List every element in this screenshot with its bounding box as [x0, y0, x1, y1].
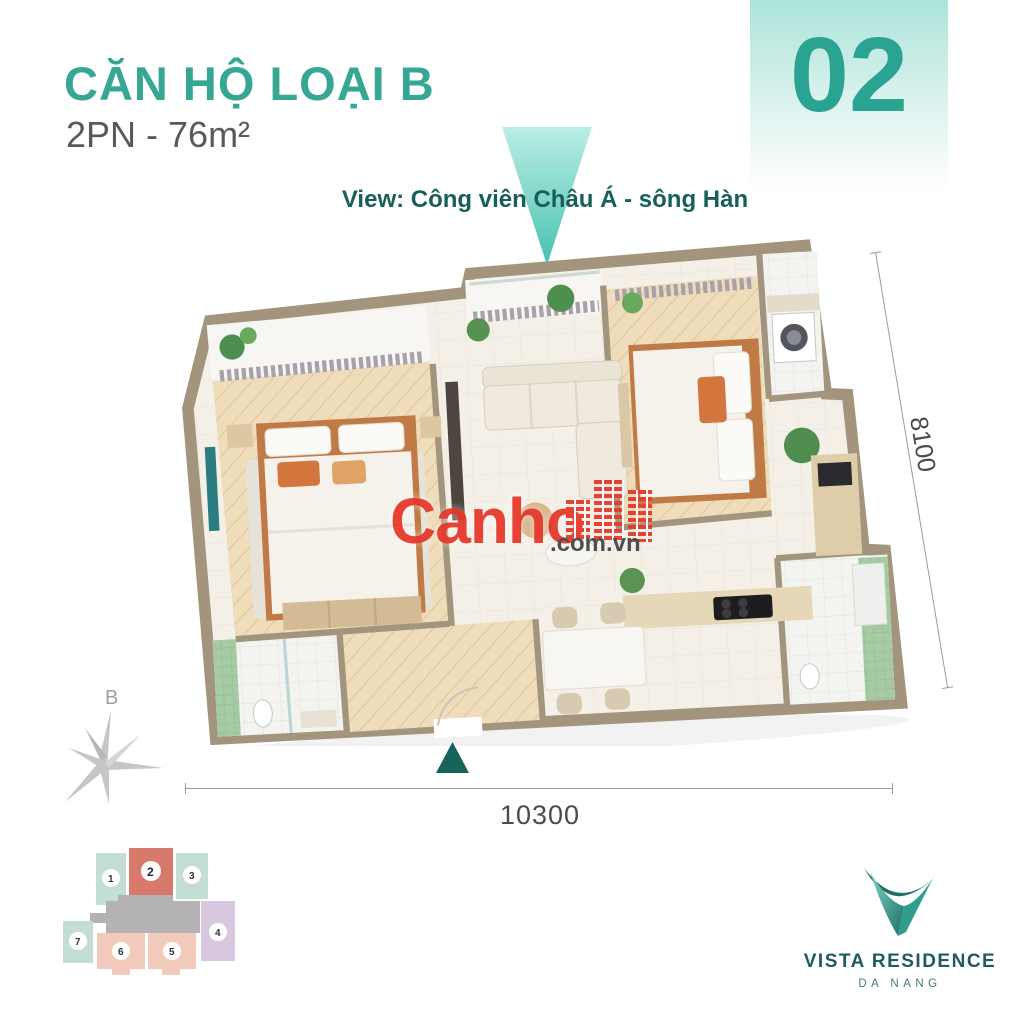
compass-north-label: B	[105, 687, 118, 709]
developer-logo: VISTA RESIDENCE DA NANG	[800, 862, 1000, 990]
building-key-plan: 1 2 3 4 5 6 7	[60, 843, 250, 983]
watermark: Canho .com.vn	[390, 484, 660, 562]
entrance-door-gap	[433, 717, 482, 738]
page-subtitle: 2PN - 76m²	[66, 114, 250, 156]
dimension-label-bottom: 10300	[470, 800, 610, 831]
keyplan-tab-6	[112, 969, 130, 975]
unit-number-badge: 02	[750, 0, 948, 208]
poster-canvas: CĂN HỘ LOẠI B 2PN - 76m² 02 View: Công v…	[0, 0, 1024, 1024]
closet-hall-floor	[340, 619, 543, 732]
keyplan-num-2: 2	[147, 865, 154, 879]
keyplan-tab-5	[162, 969, 180, 975]
vista-residence-logo-icon	[850, 862, 950, 942]
compass-star-icon	[65, 710, 163, 804]
view-label: View: Công viên Châu Á - sông Hàn	[295, 186, 795, 214]
keyplan-num-4: 4	[215, 928, 221, 939]
keyplan-num-3: 3	[189, 871, 195, 882]
entry-arrow-icon	[436, 742, 469, 773]
developer-city: DA NANG	[800, 978, 1000, 990]
compass-rose: B	[45, 672, 185, 812]
dimension-line-bottom	[185, 788, 893, 789]
keyplan-num-6: 6	[118, 947, 124, 958]
page-title: CĂN HỘ LOẠI B	[64, 56, 435, 111]
keyplan-num-7: 7	[75, 937, 81, 948]
developer-name: VISTA RESIDENCE	[800, 951, 1000, 973]
unit-number: 02	[790, 22, 908, 128]
keyplan-num-1: 1	[108, 874, 114, 885]
watermark-domain: .com.vn	[550, 530, 641, 558]
keyplan-num-5: 5	[169, 947, 175, 958]
